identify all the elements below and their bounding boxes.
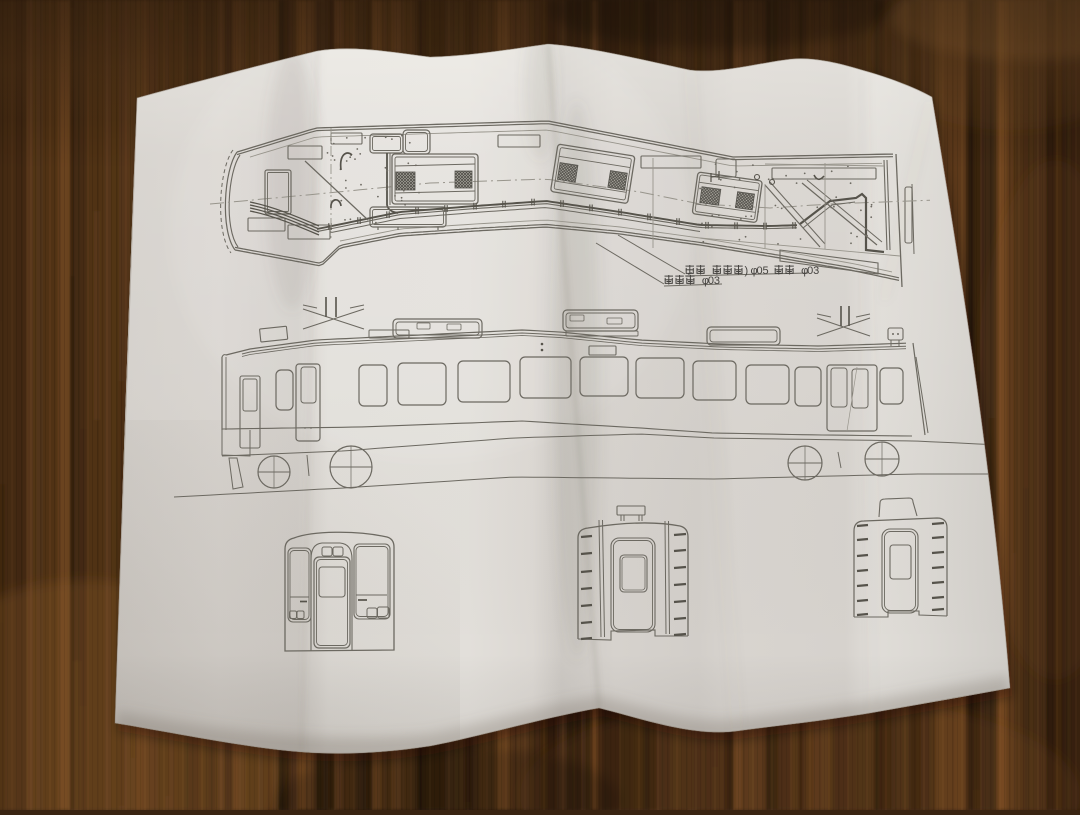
svg-text:5: 5: [763, 265, 769, 277]
svg-text:): ): [745, 265, 749, 277]
svg-text:3: 3: [714, 275, 720, 287]
svg-text:3: 3: [813, 265, 819, 277]
